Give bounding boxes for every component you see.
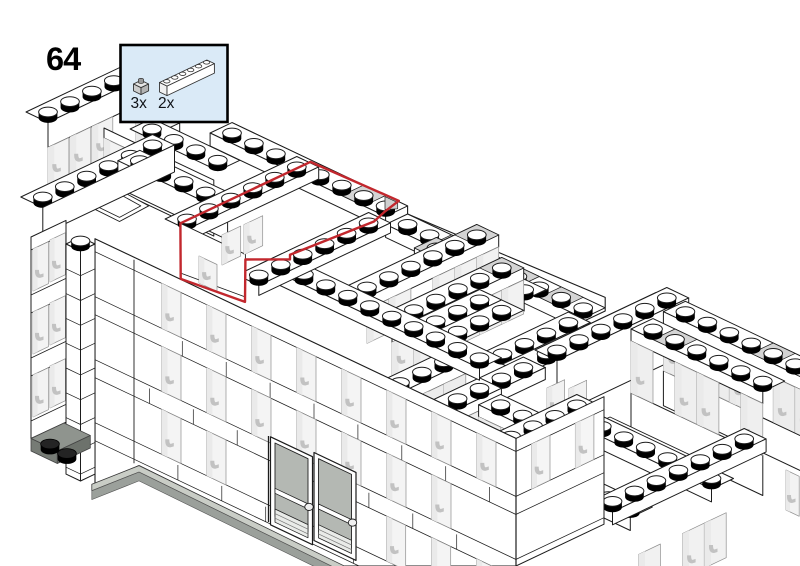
svg-text:64: 64 (46, 41, 81, 77)
svg-text:2x: 2x (158, 95, 175, 112)
svg-text:3x: 3x (131, 95, 148, 112)
